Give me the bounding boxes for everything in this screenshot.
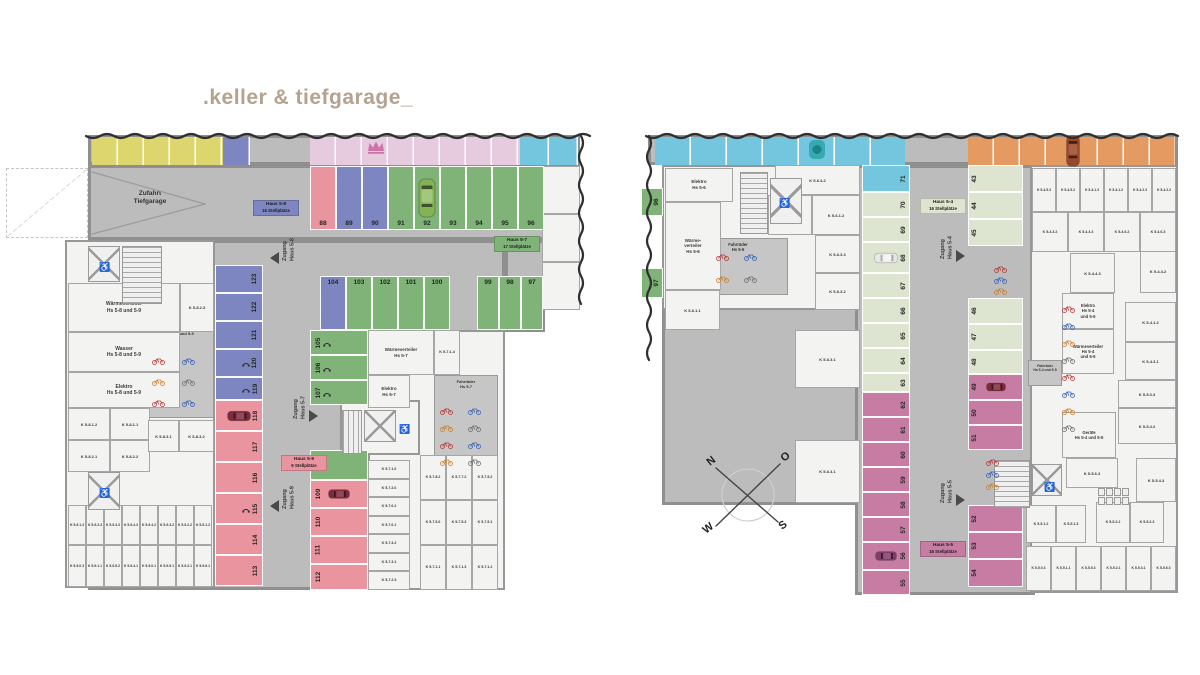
bicycle-icon [152,394,165,412]
parking-spot-number: 58 [900,501,907,508]
parking-spot-114: 114 [215,524,263,555]
parking-spot-106: 106 [310,355,368,380]
parking-spot-99: 99 [477,276,499,330]
parking-spot-number: 101 [399,279,423,286]
stellplaetze-count: 9 Stellplätze [291,463,316,468]
cellar-room: K 5-4.3.3 [1068,212,1104,252]
parking-spot-number: 44 [971,202,978,209]
car-icon [875,539,897,573]
cellar-room: K 5-9.2.1 [176,545,194,587]
cellar-room: K 5-7.1.1 [420,545,446,590]
bicycle-icon [994,287,1007,295]
parking-spot-number: 102 [373,279,397,286]
cellar-room: K 5-7.1.6 [368,460,410,479]
parking-spot-45: 45 [968,219,1023,246]
parking-spot-96: 96 [641,188,663,216]
bicycle-icon [1062,339,1075,347]
floor-plan-canvas: .keller & tiefgarage_ Fahrräder Hs 5-8 u… [0,0,1200,675]
bicycle-icon [182,399,195,407]
storage-locker [1114,488,1121,496]
cellar-room: K 5-7.5.1 [472,500,498,545]
parking-spot-70: 70 [862,192,910,217]
parking-spot-94: 94 [466,166,492,230]
bicycle-icon [182,378,195,386]
bicycle-icon [716,275,729,283]
bicycle-icon [744,270,757,288]
parking-spot-51: 51 [968,425,1023,450]
parking-spot-96: 96 [518,166,544,230]
ev-charging-icon [323,341,331,347]
parking-spot-95: 95 [492,166,518,230]
room-k-5-5-4-2: K 5-5.4.2 [1118,408,1176,444]
left-plan-building-strip-0 [92,137,223,165]
parking-spot-107: 107 [310,380,368,405]
parking-spot-number: 60 [900,451,907,458]
cellar-room: K 5-9.5.2 [104,545,122,587]
parking-spot-60: 60 [862,442,910,467]
parking-spot-number: 88 [311,220,335,227]
cellar-room: K 5-9.0.3 [68,545,86,587]
parking-spot-104: 104 [320,276,346,330]
parking-spot-number: 94 [467,220,491,227]
cellar-room: K 5-5.1.1 [1051,546,1076,591]
cellar-room: K 5-7.2.6 [368,479,410,498]
storage-locker [1122,488,1129,496]
bicycle-icon [986,477,999,495]
parking-spot-number: 122 [251,302,258,313]
bicycle-icon [744,253,757,261]
parking-spot-number: 93 [441,220,465,227]
bicycle-icon [1062,424,1075,432]
room-k-5-5-4-3: K 5-5.4.3 [1136,458,1176,502]
ramp-continuation [6,168,88,238]
car-icon [227,399,251,433]
bicycle-icon [440,402,453,420]
room-k-5-8-3-1: K 5-8.3.1 [148,420,179,452]
parking-spot-number: 55 [900,579,907,586]
bicycle-icon [182,373,195,391]
bicycle-icon [1062,322,1075,330]
zugang-arrow-icon [956,250,965,262]
room-k-5-5-1-2: K 5-5.1.2 [1026,505,1056,543]
room-k-5-6-3-3: K 5-6.3.3 [815,235,860,273]
bicycle-icon [1062,407,1075,415]
parked-car [869,246,903,270]
parking-spot-59: 59 [862,467,910,492]
cellar-room: K 5-4.1.3 [1080,168,1104,212]
parking-spot-number: 63 [900,379,907,386]
plan-break-wave [647,136,651,360]
bicycle-icon [182,394,195,412]
cellar-room: K 5-7.2.3 [368,571,410,590]
cellar-room: K 5-9.1.3 [68,505,86,545]
room-k-5-6-4-1: K 5-6.4.1 [795,440,860,503]
car-icon [1063,135,1083,167]
parking-spot-number: 59 [900,476,907,483]
parking-spot-number: 110 [315,517,322,528]
parking-spot-number: 106 [315,362,322,373]
zufahrt-label: Zufahrt Tiefgarage [110,190,190,207]
parked-car [417,173,437,223]
parking-spot-110: 110 [310,508,368,536]
bicycle-icon [440,424,453,432]
parking-spot-111: 111 [310,536,368,564]
parking-spot-115: 115 [215,493,263,524]
stellplaetze-count: 16 Stellplätze [929,206,957,211]
cellar-room: K 5-5.0.3 [1026,546,1051,591]
room-cell [542,166,580,214]
parked-car [222,404,256,428]
bicycle-icon [716,248,729,266]
parking-spot-number: 67 [900,282,907,289]
parking-spot-53: 53 [968,532,1023,559]
cellar-room: K 5-4.2.2 [1152,168,1176,212]
page-title: .keller & tiefgarage_ [203,86,413,110]
bicycle-icon [468,453,481,471]
bicycle-icon [440,407,453,415]
bicycle-icon [1062,385,1075,403]
parking-spot-number: 54 [971,569,978,576]
parking-spot-112: 112 [310,564,368,590]
staircase [740,172,768,234]
parking-spot-number: 52 [971,515,978,522]
room-k-5-8-1-2: K 5-8.1.2 [68,408,110,440]
room-k-5-8-2-3: K 5-8.2.3 [180,283,214,332]
room-k-5-5-3-3: K 5-5.3.3 [1118,380,1176,408]
parking-spot-121: 121 [215,321,263,349]
bicycle-icon [152,352,165,370]
parking-spot-98: 98 [499,276,521,330]
parking-spot-69: 69 [862,217,910,242]
storage-locker [1106,497,1113,505]
parking-spot-120: 120 [215,349,263,377]
parking-spot-105: 105 [310,330,368,355]
parking-spot-116: 116 [215,462,263,493]
bicycle-icon [468,402,481,420]
cellar-room: K 5-5.5.3 [1076,546,1101,591]
parking-spot-113: 113 [215,555,263,586]
cellar-room: K 5-4.6.3 [1140,212,1176,252]
bicycle-icon [1062,351,1075,369]
parking-spot-number: 90 [363,220,387,227]
parking-spot-44: 44 [968,192,1023,219]
parking-spot-number: 51 [971,434,978,441]
parking-spot-number: 104 [321,279,345,286]
staircase [994,460,1030,508]
parking-spot-number: 69 [900,226,907,233]
parking-spot-52: 52 [968,505,1023,532]
room-k-5-4-4-3: K 5-4.4.3 [1070,253,1115,293]
compass-label-s: S [776,518,789,532]
ev-charging-icon [323,384,331,402]
ev-charging-icon [323,391,331,397]
cellar-room: K 5-9.0.1 [140,545,158,587]
left-plan-building-strip-2 [310,137,520,165]
parking-spot-number: 112 [315,572,322,583]
bicycle-icon [1062,334,1075,352]
ev-charging-icon [323,359,331,377]
cellar-room: K 5-7.3.1 [368,553,410,572]
parking-spot-number: 89 [337,220,361,227]
parking-spot-number: 48 [971,358,978,365]
parking-spot-number: 96 [519,220,543,227]
bicycle-icon [1062,419,1075,437]
parking-spot-68: 68 [862,242,910,273]
stellplaetze-info-box: Haus 5-717 Stellplätze [494,236,540,252]
parking-spot-number: 50 [971,409,978,416]
room-k-5-5-2-2: K 5-5.2.2 [1096,502,1130,543]
room-k-5-5-1-3: K 5-5.1.3 [1056,505,1086,543]
parking-spot-88: 88 [310,166,336,230]
bicycle-icon [1062,373,1075,381]
bicycle-icon [1062,317,1075,335]
room-elektro-hs-5-6: Elektro Hs 5-6 [665,168,733,202]
room-k-5-6-1-1: K 5-6.1.1 [665,290,720,330]
room-cell [542,262,580,310]
cellar-room: K 5-4.1.2 [1104,168,1128,212]
right-plan-building-strip-0 [655,137,905,165]
cellar-room: K 5-7.6.1 [368,516,410,535]
bicycle-icon [1062,368,1075,386]
bicycle-icon [468,436,481,454]
parking-spot-number: 91 [389,220,413,227]
parking-spot-number: 64 [900,357,907,364]
parking-spot-93: 93 [440,166,466,230]
cellar-room: K 5-7.1.3 [446,545,472,590]
cellar-room: K 5-9.5.1 [158,545,176,587]
cellar-room: K 5-7.6.2 [368,497,410,516]
parking-spot-number: 53 [971,542,978,549]
storage-locker [1106,488,1113,496]
wheelchair-icon: ♿ [99,488,110,499]
parking-spot-number: 117 [251,441,258,452]
cellar-room: K 5-7.5.3 [446,500,472,545]
room-k-5-5-6-3: K 5-5.6.3 [1066,458,1118,488]
bicycle-icon [468,441,481,449]
parking-spot-number: 43 [971,175,978,182]
parking-spot-50: 50 [968,400,1023,425]
bicycle-icon [986,482,999,490]
cellar-room: K 5-5.3.1 [1126,546,1151,591]
room-k-5-8-2-1: K 5-8.2.1 [68,440,110,472]
cellar-room: K 5-9.6.1 [194,545,212,587]
room-w-rmeverteiler-hs-5-7: Wärmeverteiler Hs 5-7 [368,330,434,375]
cellar-room: K 5-4.6.2 [1104,212,1140,252]
stellplaetze-info-box: Haus 5-816 Stellplätze [253,200,299,216]
bicycle-icon [182,357,195,365]
car-icon [874,241,898,275]
left-plan-building-strip-3 [520,137,578,165]
bicycle-icon [1062,402,1075,420]
parking-spot-91: 91 [388,166,414,230]
bicycle-icon [152,373,165,391]
zugang-arrow-icon [270,252,279,264]
storage-locker [1098,497,1105,505]
cellar-room: K 5-4.5.3 [1032,168,1056,212]
stellplaetze-count: 17 Stellplätze [503,244,531,249]
parking-spot-number: 123 [251,274,258,285]
parked-car [869,545,903,567]
parking-spot-number: 96 [653,198,660,205]
parking-spot-102: 102 [372,276,398,330]
zugang-arrow-icon [956,494,965,506]
parking-spot-67: 67 [862,273,910,298]
parking-spot-number: 97 [522,279,542,286]
car-icon [1063,135,1083,167]
cellar-room: K 5-7.5.6 [420,500,446,545]
parking-spot-number: 62 [900,401,907,408]
parking-spot-117: 117 [215,431,263,462]
ev-charging-icon [323,366,331,372]
wheelchair-icon: ♿ [779,198,790,209]
zugang-arrow-icon [270,500,279,512]
room-cell [542,214,580,262]
stellplaetze-count: 16 Stellplätze [929,549,957,554]
parking-spot-number: 115 [251,503,258,514]
room-k-5-6-1-2: K 5-6.1.2 [812,195,860,235]
parking-spot-66: 66 [862,298,910,323]
parking-spot-61: 61 [862,417,910,442]
parking-spot-54: 54 [968,559,1023,587]
parking-spot-123: 123 [215,265,263,293]
compass-label-w: W [700,520,716,536]
parking-spot-number: 46 [971,307,978,314]
parking-spot-46: 46 [968,298,1023,324]
ev-charging-icon [242,500,250,518]
parking-spot-92: 92 [414,166,440,230]
cellar-room: K 5-9.4.1 [122,545,140,587]
parking-spot-number: 100 [425,279,449,286]
bicycle-icon [468,458,481,466]
parking-spot-number: 99 [478,279,498,286]
room-elektro-hs-5-7: Elektro Hs 5-7 [368,375,410,408]
staircase [342,410,362,454]
parking-spot-number: 116 [251,472,258,483]
cellar-room: K 5-4.2.3 [1128,168,1152,212]
room-k-5-6-3-2: K 5-6.3.2 [815,273,860,310]
parking-spot-97: 97 [641,268,663,298]
stellplaetze-info-box: Haus 5-516 Stellplätze [920,541,966,557]
bicycle-icon [468,407,481,415]
parking-spot-number: 120 [251,358,258,369]
cellar-room: K 5-7.3.2 [368,534,410,553]
parking-spot-62: 62 [862,392,910,417]
bicycle-icon [440,441,453,449]
bicycle-icon [994,282,1007,300]
bicycle-icon [1062,300,1075,318]
parked-car [975,377,1016,397]
zugang-label: Zugang Haus 5-5 [940,480,955,503]
bicycle-icon [440,419,453,437]
room-k-5-7-1-4: K 5-7.1.4 [434,330,460,375]
elevator [364,410,396,442]
ev-charging-icon [242,380,250,398]
bicycle-icon [744,248,757,266]
bicycle-icon [468,419,481,437]
stellplaetze-info-box: Haus 5-416 Stellplätze [920,198,966,214]
bicycle-icon [182,352,195,370]
left-plan-building-strip-1 [223,137,250,165]
wheelchair-icon: ♿ [399,424,410,435]
parking-spot-number: 45 [971,229,978,236]
ev-charging-icon [242,361,250,367]
ev-charging-icon [242,387,250,393]
cellar-room: K 5-5.2.1 [1101,546,1126,591]
ev-charging-icon [323,334,331,352]
parked-car [317,483,361,505]
bicycle-icon [468,424,481,432]
storage-locker [1098,488,1105,496]
parking-spot-number: 71 [900,175,907,182]
bicycle-icon [1062,390,1075,398]
ev-charging-icon [242,354,250,372]
room-k-5-4-3-1: K 5-4.3.1 [1125,342,1176,380]
parking-spot-number: 105 [315,337,322,348]
cellar-room: K 5-9.2.3 [86,505,104,545]
parking-spot-89: 89 [336,166,362,230]
bicycle-icon [440,453,453,471]
cellar-room: K 5-4.5.2 [1056,168,1080,212]
bike-room: Fahrräder Hs 5-4 und 5-5 [1028,360,1062,386]
storage-locker [1114,497,1121,505]
parking-spot-55: 55 [862,570,910,595]
parking-spot-100: 100 [424,276,450,330]
parking-spot-number: 113 [251,565,258,576]
room-k-5-8-1-1: K 5-8.1.1 [110,408,150,440]
zugang-label: Zugang Haus 5-8 [282,238,297,261]
parking-spot-90: 90 [362,166,388,230]
cellar-room: K 5-5.6.3 [1151,546,1176,591]
cellar-room: K 5-9.3.3 [104,505,122,545]
parking-spot-number: 103 [347,279,371,286]
parking-spot-122: 122 [215,293,263,321]
parking-spot-119: 119 [215,377,263,400]
parking-spot-56: 56 [862,542,910,570]
wheelchair-icon: ♿ [1044,482,1055,493]
room-k-5-8-2-2: K 5-8.2.2 [110,440,150,472]
parking-spot-number: 107 [315,387,322,398]
cellar-room: K 5-7.1.2 [472,545,498,590]
parking-spot-109: 109 [310,480,368,508]
parking-spot-47: 47 [968,324,1023,350]
parking-spot-number: 111 [315,545,322,555]
parking-spot-63: 63 [862,373,910,392]
room-k-5-8-3-2: K 5-8.3.2 [179,420,214,452]
zugang-label: Zugang Haus 5-4 [940,236,955,259]
parking-spot-number: 95 [493,220,517,227]
parking-spot-49: 49 [968,374,1023,400]
parking-spot-number: 57 [900,526,907,533]
storage-locker [1122,497,1129,505]
planter-icon [808,139,826,165]
cellar-room: K 5-9.2.2 [176,505,194,545]
stellplaetze-info-box: Haus 5-99 Stellplätze [281,455,327,471]
parking-spot-103: 103 [346,276,372,330]
bicycle-icon [152,378,165,386]
parking-spot-number: 66 [900,307,907,314]
zugang-label: Zugang Haus 5-7 [293,396,308,419]
bicycle-icon [440,458,453,466]
staircase [122,246,162,304]
cellar-room: K 5-4.3.2 [1032,212,1068,252]
parking-spot-number: 47 [971,333,978,340]
bicycle-icon [744,275,757,283]
bicycle-icon [152,357,165,365]
room-k-5-6-3-1: K 5-6.3.1 [795,330,860,388]
parking-spot-64: 64 [862,348,910,373]
room-k-5-4-4-2: K 5-4.4.2 [1140,250,1176,293]
cellar-room: K 5-9.4.3 [122,505,140,545]
